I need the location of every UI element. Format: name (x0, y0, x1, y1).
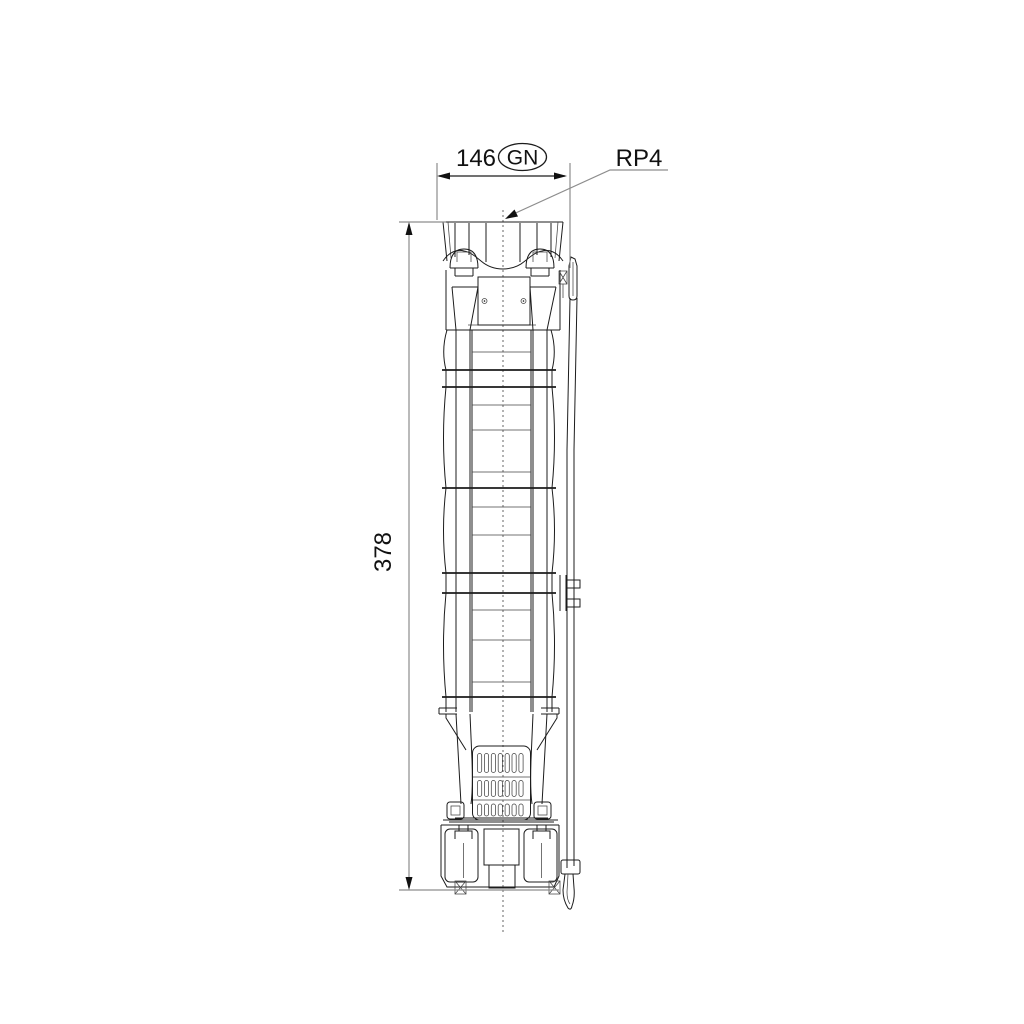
gn-badge-label: GN (507, 147, 539, 170)
technical-drawing-page: 146 GN RP4 378 (0, 0, 1024, 1024)
leader-line (508, 170, 668, 217)
suction-strainer (473, 746, 531, 820)
strap-foot-bolt (447, 802, 464, 819)
arrow-up-icon (406, 222, 413, 235)
height-dimension-value: 378 (370, 532, 397, 572)
cable-guard-top-caps (450, 249, 554, 276)
motor-section (441, 820, 560, 894)
cable-end-hook (561, 860, 580, 909)
nameplate (478, 277, 530, 325)
pump-dimensional-drawing: 146 GN RP4 378 (0, 0, 1024, 1024)
pump-chamber-stack (442, 330, 556, 712)
motor-plug-right (524, 829, 557, 882)
gn-variant-badge: GN (499, 144, 547, 171)
motor-center-housing (484, 829, 519, 865)
arrow-down-icon (406, 877, 413, 890)
width-dimension: 146 GN (437, 144, 570, 269)
suction-interconnector (439, 708, 559, 822)
leader-arrow-icon (505, 210, 518, 220)
arrow-right-icon (554, 173, 567, 180)
motor-plug-left (445, 829, 478, 882)
motor-cable (559, 257, 580, 909)
width-dimension-value: 146 (456, 145, 496, 172)
cable-clamp (560, 575, 580, 611)
strap-foot-bolt (534, 802, 551, 819)
thread-size-label: RP4 (616, 145, 663, 172)
arrow-left-icon (437, 173, 450, 180)
